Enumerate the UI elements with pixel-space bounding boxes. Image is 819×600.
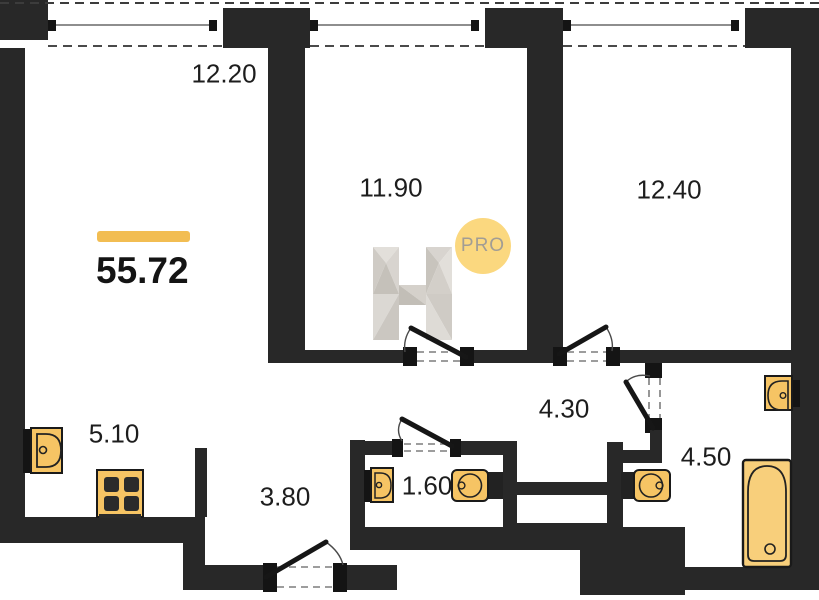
- door-leaf-entry: [266, 542, 326, 577]
- floor-plan: 12.20 11.90 12.40 5.10 3.80 1.60 4.30 4.…: [0, 0, 819, 600]
- pro-badge-text: PRO: [461, 235, 505, 257]
- window: [563, 20, 745, 46]
- door-leaf-bedroom-right: [559, 327, 606, 354]
- room-area-entry-hall: 3.80: [260, 482, 311, 513]
- window: [310, 20, 485, 46]
- room-area-bedroom-middle: 11.90: [359, 173, 422, 204]
- wc-toilet-icon: [452, 470, 503, 501]
- bathroom-toilet-icon: [621, 470, 670, 501]
- room-area-bathroom: 4.50: [681, 442, 732, 473]
- door-leaf-wc: [402, 419, 452, 446]
- room-area-corridor: 4.30: [539, 394, 590, 425]
- stove-icon: [97, 470, 143, 518]
- bathroom-sink-icon: [765, 376, 800, 410]
- wc-sink-icon: [364, 468, 393, 502]
- window: [48, 20, 223, 46]
- room-area-kitchen: 5.10: [89, 419, 140, 450]
- plan-graphics: [0, 0, 819, 600]
- door-swing-arcs: [326, 327, 650, 565]
- bathtub-icon: [743, 460, 791, 567]
- door-leaves: [266, 327, 653, 577]
- total-area-label: 55.72: [96, 250, 189, 292]
- total-area-accent-bar: [97, 231, 190, 242]
- kitchen-sink-icon: [23, 428, 62, 473]
- room-area-living: 12.20: [191, 59, 256, 90]
- room-area-wc: 1.60: [402, 471, 453, 502]
- room-area-bedroom-right: 12.40: [636, 175, 701, 206]
- pro-badge: PRO: [455, 218, 511, 274]
